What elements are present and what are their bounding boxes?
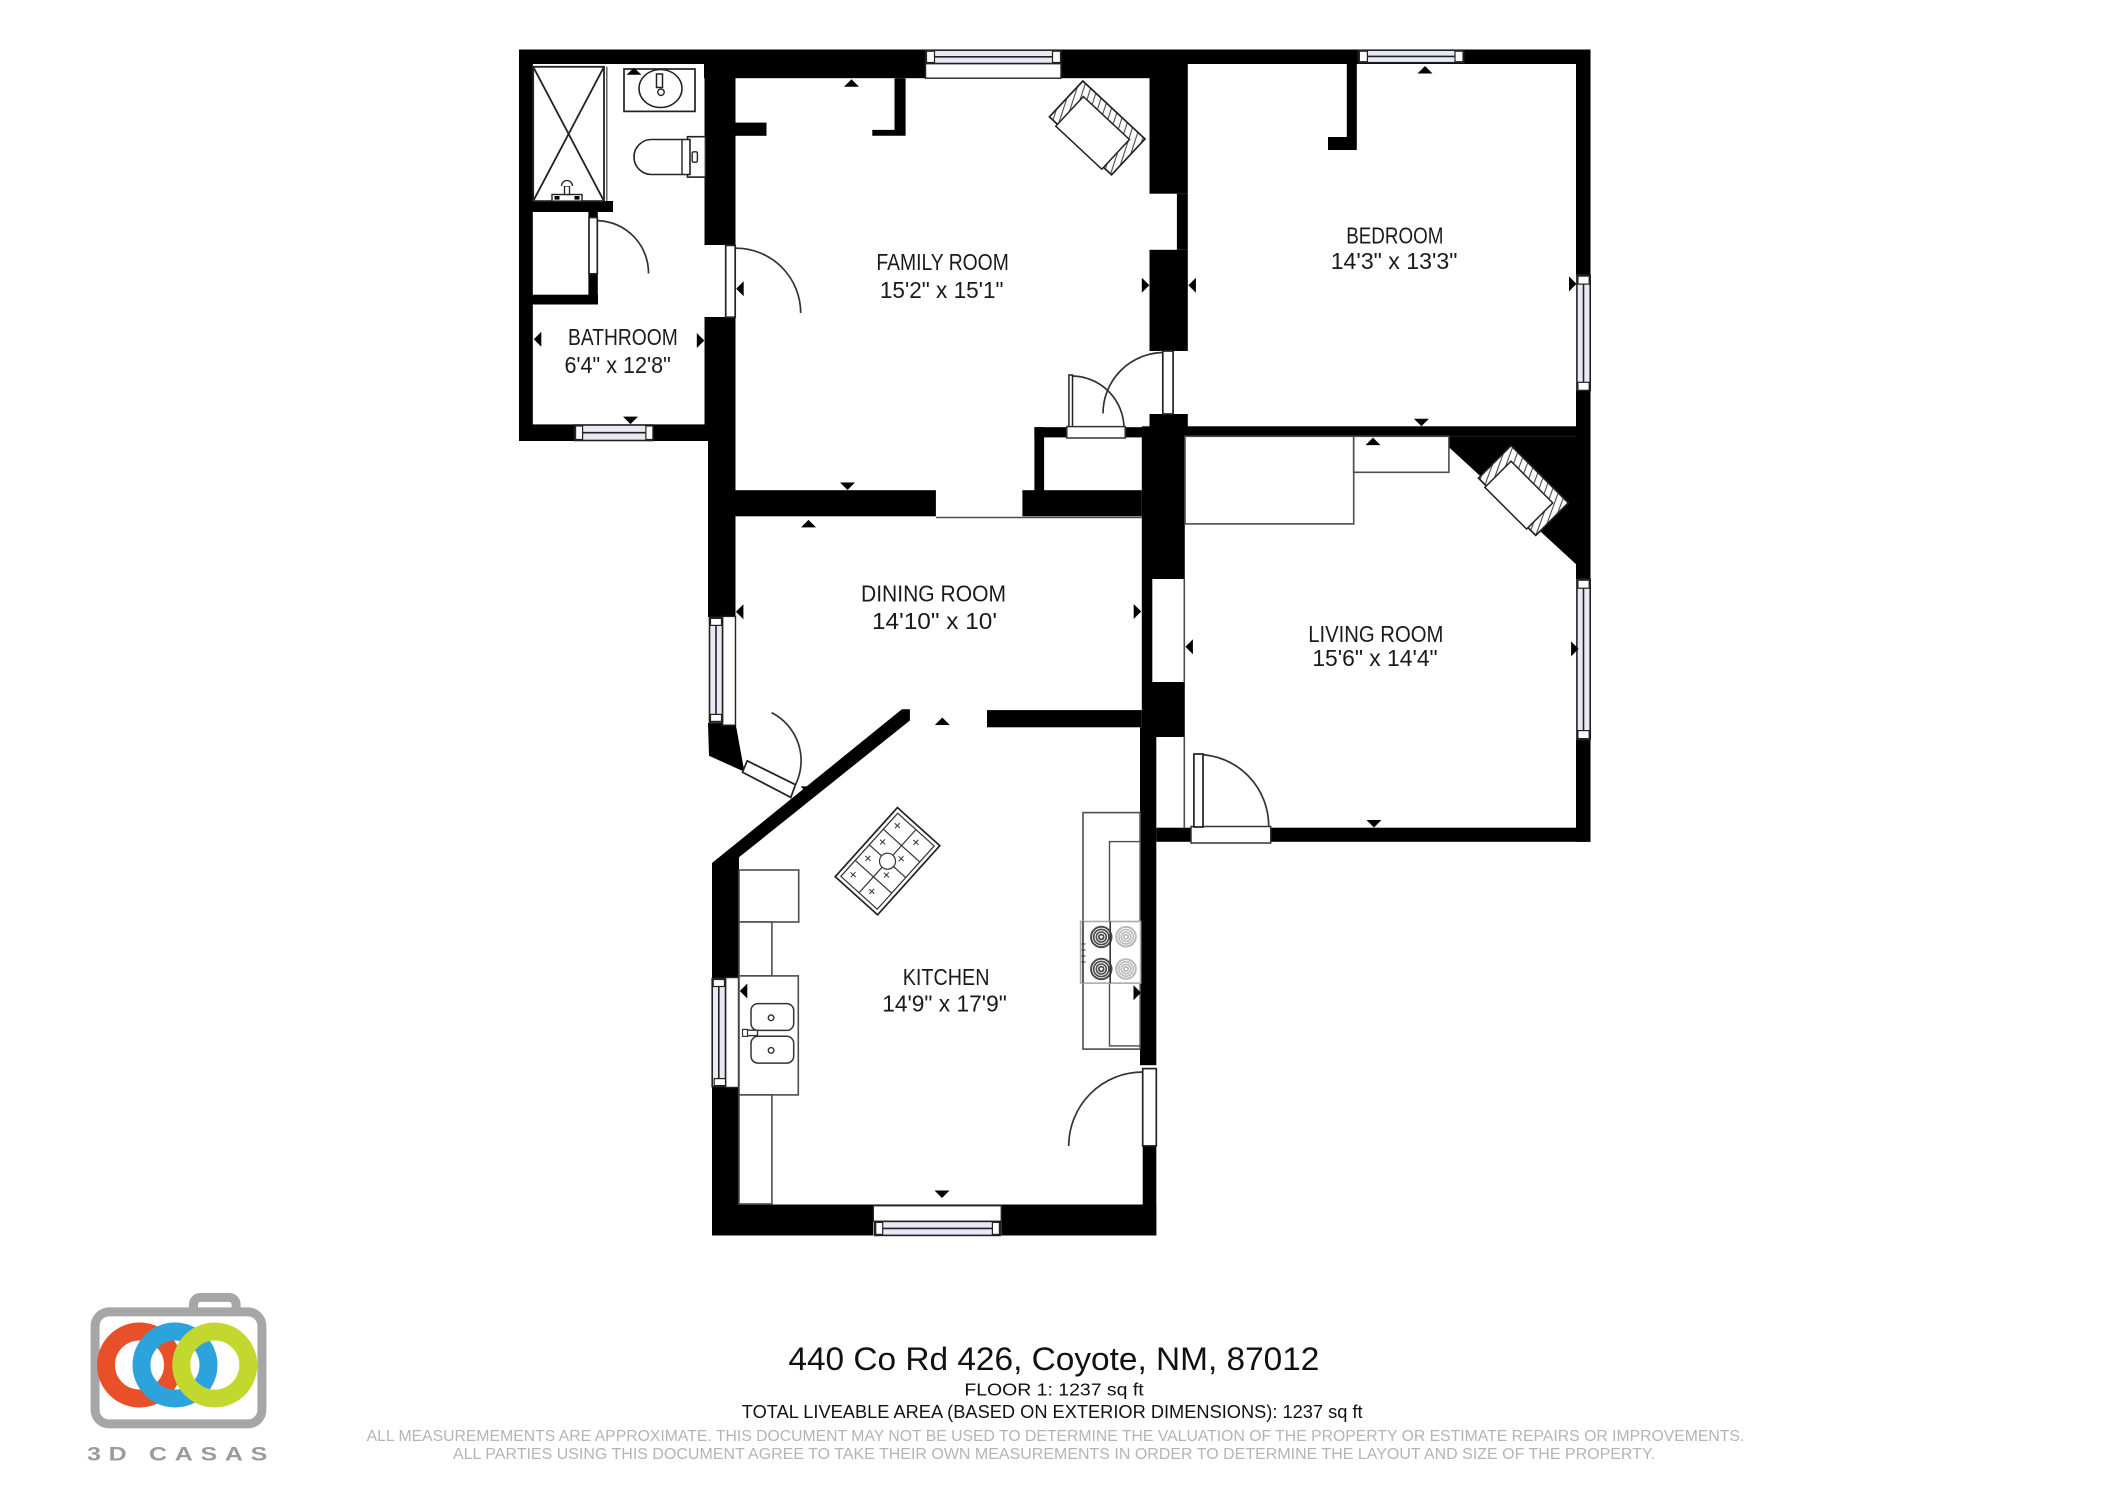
svg-text:BEDROOM: BEDROOM [1346, 223, 1443, 249]
svg-text:ALL MEASUREMEMENTS ARE APPROXI: ALL MEASUREMEMENTS ARE APPROXIMATE. THIS… [367, 1428, 1745, 1445]
svg-text:FLOOR 1: 1237 sq ft: FLOOR 1: 1237 sq ft [964, 1380, 1143, 1400]
svg-text:LIVING ROOM: LIVING ROOM [1308, 621, 1443, 647]
svg-text:FAMILY ROOM: FAMILY ROOM [876, 249, 1008, 275]
svg-text:14'10" x 10': 14'10" x 10' [872, 608, 997, 634]
svg-text:14'3" x 13'3": 14'3" x 13'3" [1331, 248, 1458, 274]
svg-text:6'4" x 12'8": 6'4" x 12'8" [564, 352, 670, 378]
svg-text:15'6" x 14'4": 15'6" x 14'4" [1312, 645, 1437, 671]
svg-text:DINING ROOM: DINING ROOM [861, 581, 1006, 607]
svg-text:3D CASAS: 3D CASAS [87, 1444, 275, 1466]
svg-text:14'9" x 17'9": 14'9" x 17'9" [882, 990, 1007, 1016]
svg-text:BATHROOM: BATHROOM [568, 324, 678, 350]
svg-text:440 Co Rd 426, Coyote, NM, 870: 440 Co Rd 426, Coyote, NM, 87012 [788, 1341, 1319, 1377]
svg-text:TOTAL LIVEABLE AREA (BASED ON: TOTAL LIVEABLE AREA (BASED ON EXTERIOR D… [742, 1402, 1363, 1422]
svg-text:KITCHEN: KITCHEN [903, 964, 990, 990]
svg-text:ALL PARTIES USING THIS DOCUMEN: ALL PARTIES USING THIS DOCUMENT AGREE TO… [453, 1446, 1655, 1463]
svg-text:15'2" x 15'1": 15'2" x 15'1" [880, 277, 1004, 303]
